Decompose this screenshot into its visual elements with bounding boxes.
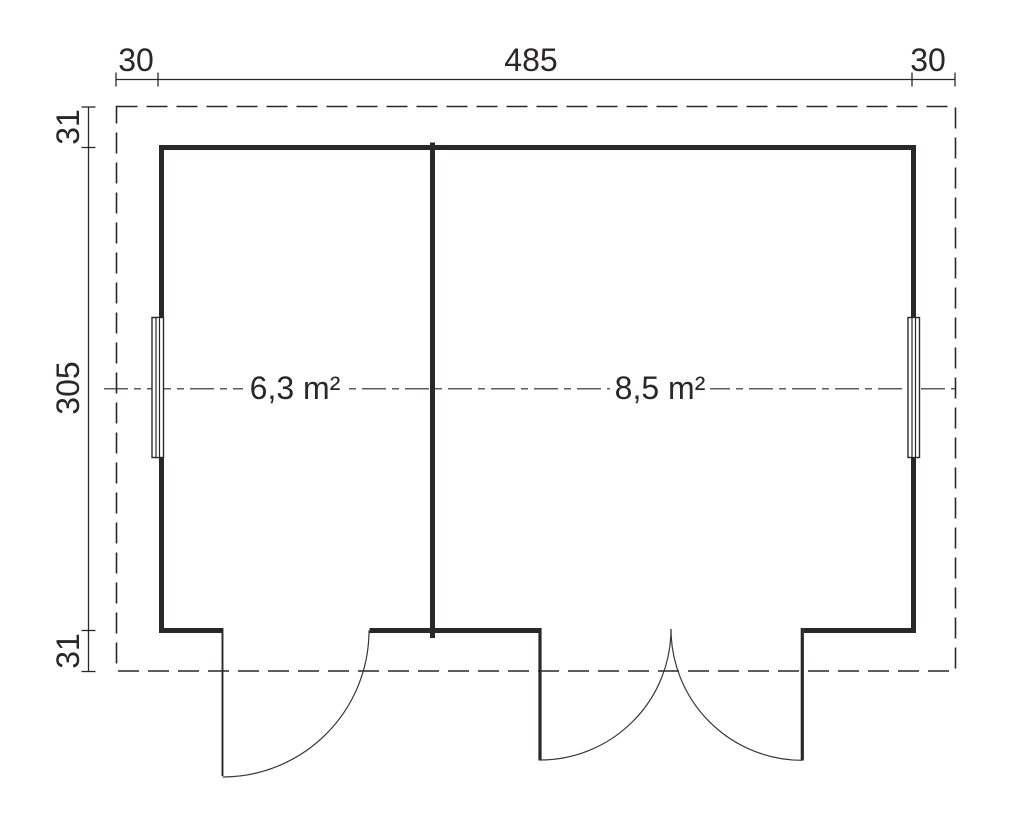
double-door-left-swing-arc	[540, 629, 671, 760]
building-depth-label: 305	[50, 361, 86, 414]
double-door	[540, 628, 802, 761]
top-dimension: 30 485 30	[116, 42, 955, 87]
side-bottom-overhang-label: 31	[50, 633, 86, 669]
side-top-overhang-label: 31	[50, 109, 86, 145]
right-window-glass	[912, 318, 916, 458]
top-right-overhang-label: 30	[910, 42, 946, 78]
right-window	[908, 318, 920, 458]
side-dimension: 31 305 31	[50, 107, 96, 672]
left-window	[152, 318, 164, 458]
single-door-swing-arc	[223, 631, 370, 778]
building-width-label: 485	[504, 42, 557, 78]
double-door-right-swing-arc	[671, 629, 802, 760]
top-left-overhang-label: 30	[118, 42, 154, 78]
right-room-area-label: 8,5 m²	[615, 370, 706, 406]
left-window-glass	[156, 318, 160, 458]
floor-plan-canvas: 30 485 30 31 305 31 6,3 m² 8,5 m²	[0, 0, 1026, 821]
single-door	[223, 628, 370, 777]
left-room-area-label: 6,3 m²	[250, 370, 341, 406]
floor-plan-drawing: 30 485 30 31 305 31 6,3 m² 8,5 m²	[0, 0, 1026, 821]
